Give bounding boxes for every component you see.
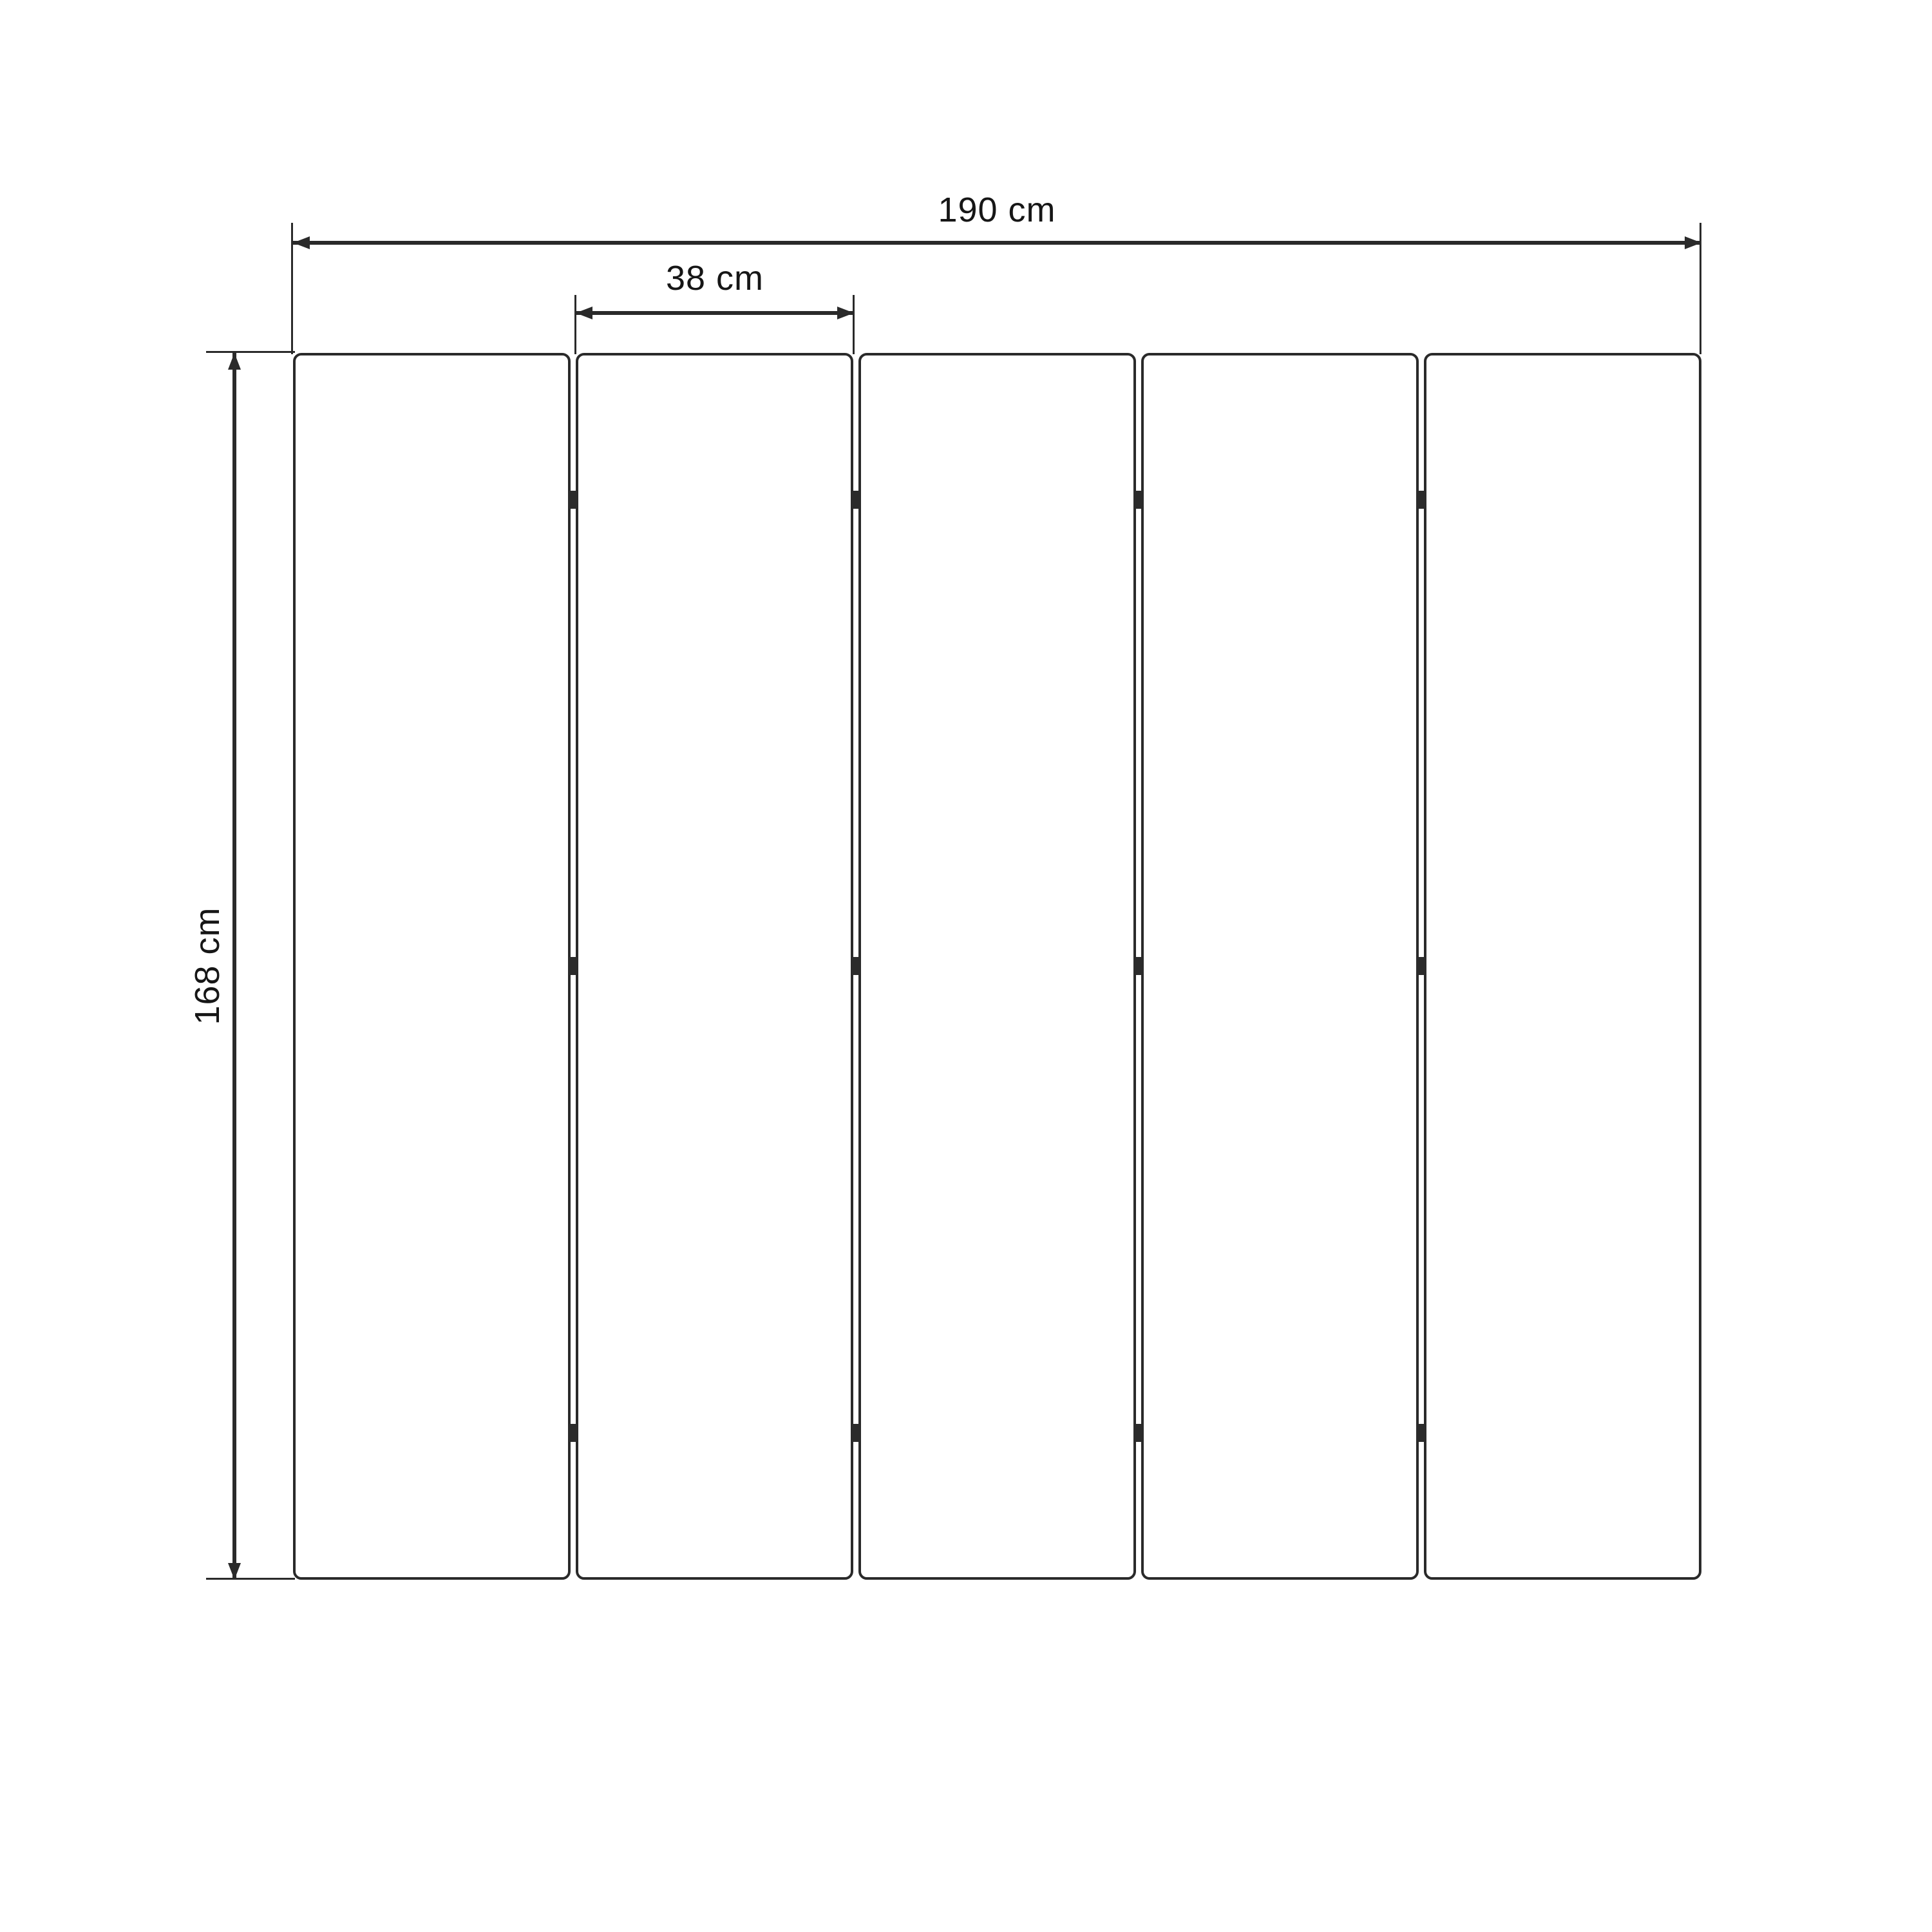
- hinge: [1416, 491, 1426, 509]
- hinge: [568, 957, 578, 975]
- hinge: [1133, 491, 1144, 509]
- hinge: [1133, 957, 1144, 975]
- hinge: [1133, 1424, 1144, 1442]
- screen-panel: [576, 353, 853, 1580]
- height-label: 168 cm: [190, 907, 225, 1025]
- arrowhead-up-icon: [228, 353, 241, 370]
- hinge: [1416, 1424, 1426, 1442]
- panel-width-label: 38 cm: [666, 261, 764, 296]
- hinge: [568, 491, 578, 509]
- hinge: [568, 1424, 578, 1442]
- arrowhead-left-icon: [293, 236, 310, 249]
- hinge: [851, 957, 861, 975]
- height-dimension-line: [232, 353, 236, 1580]
- screen-panel: [1424, 353, 1701, 1580]
- height-extension-line-top: [206, 351, 295, 353]
- total-width-dimension-line: [293, 241, 1701, 245]
- height-extension-line-bottom: [206, 1578, 295, 1580]
- arrowhead-down-icon: [228, 1563, 241, 1580]
- arrowhead-right-icon: [1685, 236, 1701, 249]
- arrowhead-right-icon: [837, 307, 854, 319]
- hinge: [851, 1424, 861, 1442]
- hinge: [851, 491, 861, 509]
- screen-panel: [293, 353, 571, 1580]
- panel-width-extension-line-left: [574, 295, 576, 354]
- hinge: [1416, 957, 1426, 975]
- panel-width-dimension-line: [576, 311, 854, 315]
- screen-panel: [1141, 353, 1419, 1580]
- arrowhead-left-icon: [576, 307, 592, 319]
- panel-width-extension-line-right: [853, 295, 855, 354]
- screen-panel: [858, 353, 1136, 1580]
- total-width-label: 190 cm: [938, 193, 1056, 227]
- dimension-diagram: 190 cm 38 cm 168 cm: [0, 0, 1932, 1932]
